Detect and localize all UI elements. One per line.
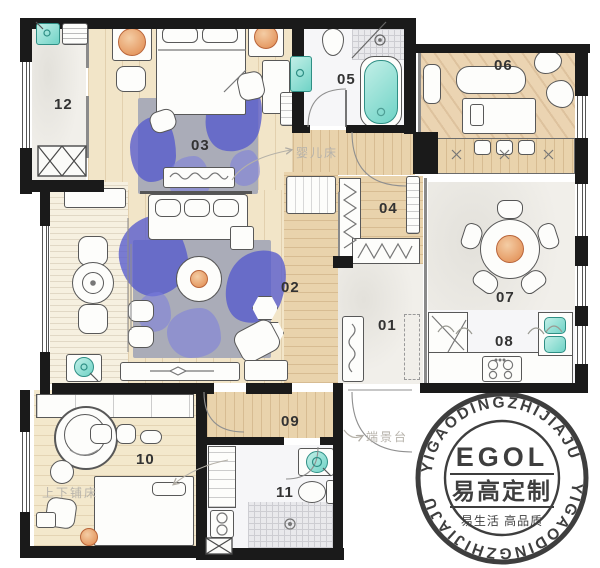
annotation-baby-crib: 婴儿床 [296, 144, 338, 161]
room-label-09: 09 [281, 413, 300, 430]
room-label-04: 04 [379, 200, 398, 217]
tv-console [120, 362, 240, 381]
sofa-cushion [184, 199, 210, 217]
room-label-05: 05 [337, 71, 356, 88]
stamp-brand: 易高定制 [452, 478, 552, 504]
window [577, 96, 586, 138]
partition [86, 96, 89, 158]
annotation-end-view-stand: 端景台 [366, 428, 408, 445]
stool [474, 140, 491, 155]
room-label-10: 10 [136, 451, 155, 468]
room-label-07: 07 [496, 289, 515, 306]
wall [246, 383, 292, 394]
wall [575, 236, 588, 266]
bathtub-basin [364, 60, 398, 124]
room-divider [140, 191, 252, 194]
sink-room12 [36, 23, 60, 45]
shower-floor-11 [248, 502, 334, 548]
wall [202, 548, 344, 560]
kitchen-counter [428, 312, 468, 354]
wall [575, 138, 588, 184]
pillow [202, 27, 238, 43]
pillow [152, 482, 186, 496]
window [577, 184, 586, 236]
washer-11 [210, 510, 234, 538]
wall [292, 18, 304, 56]
sink-round-11 [306, 451, 328, 473]
bath-cabinet [208, 446, 236, 508]
balcony-table-inner [82, 272, 104, 294]
stool-orange [80, 528, 98, 546]
wall [20, 390, 30, 432]
wall [40, 190, 50, 226]
stool [518, 140, 535, 155]
wall [292, 125, 310, 133]
floor-hall09 [207, 392, 333, 438]
drainboard [62, 23, 88, 45]
entry-console [342, 316, 364, 382]
wall [333, 256, 353, 268]
balcony-chair [78, 304, 108, 334]
daybed [456, 66, 526, 94]
partition [418, 53, 421, 140]
table-lamp [118, 28, 146, 56]
stamp-slogan: 易生活 高品质 [461, 513, 543, 528]
wall [404, 18, 416, 134]
window [22, 432, 30, 512]
window [577, 266, 586, 306]
room-label-02: 02 [281, 279, 300, 296]
wall [24, 546, 200, 558]
floor-plan: 01 02 03 04 05 06 07 08 09 10 11 12 婴儿床 … [0, 0, 600, 568]
sofa-cushion [213, 199, 239, 217]
sofa-small [423, 64, 441, 104]
window [22, 62, 30, 148]
toilet-bowl-11 [298, 481, 326, 503]
wall [575, 44, 588, 96]
window [42, 226, 49, 352]
room-label-03: 03 [191, 137, 210, 154]
pouf [128, 326, 154, 348]
cushion [140, 430, 162, 444]
small-shelf [36, 512, 56, 528]
shoe-cabinet-dashed [404, 314, 420, 380]
ottoman [50, 460, 74, 484]
stamp-logo: EGOL [456, 442, 549, 472]
washing-machine-drum [74, 357, 94, 377]
room-label-01: 01 [378, 317, 397, 334]
wall [40, 352, 50, 394]
stove [482, 356, 522, 382]
room-label-08: 08 [495, 333, 514, 350]
wall [58, 18, 414, 29]
vanity-sink-hall [290, 56, 312, 92]
monitor [470, 104, 484, 126]
stool [496, 140, 513, 155]
kitchen-sink [544, 317, 566, 334]
partition [424, 178, 427, 384]
dining-chair [497, 200, 523, 219]
watermark-stamp: YIGAODINGZHIJIAJU YIGAODINGZHIJIAJU EGOL… [410, 386, 594, 568]
storage-shelf-row [36, 394, 194, 418]
annotation-bunk-bed: 上下铺床 [42, 484, 98, 501]
wall [346, 125, 412, 133]
bench-sideboard [163, 167, 235, 188]
pouf [128, 300, 154, 322]
wall [412, 44, 590, 53]
room-label-11: 11 [276, 484, 294, 501]
wall [320, 437, 336, 445]
bedroom-chair [116, 66, 146, 92]
wall [52, 383, 214, 394]
room-label-12: 12 [54, 96, 73, 113]
cushion [90, 424, 112, 444]
wall [202, 437, 284, 445]
cabinet [244, 360, 288, 381]
wall [20, 18, 32, 62]
wall [196, 383, 207, 560]
wall [413, 132, 438, 174]
wall [333, 383, 343, 556]
wardrobe [352, 238, 420, 264]
sofa-cushion [155, 199, 181, 217]
kitchen-sink [544, 336, 566, 353]
room-label-06: 06 [494, 57, 513, 74]
window [577, 326, 586, 364]
baby-crib [286, 176, 336, 214]
closet-shelf [406, 176, 420, 234]
partition [338, 192, 340, 258]
coffee-table-decor [190, 270, 208, 288]
side-table [230, 226, 254, 250]
dining-table-center [496, 235, 524, 263]
pillow [162, 27, 198, 43]
wall [575, 306, 588, 326]
cushion [116, 424, 136, 444]
